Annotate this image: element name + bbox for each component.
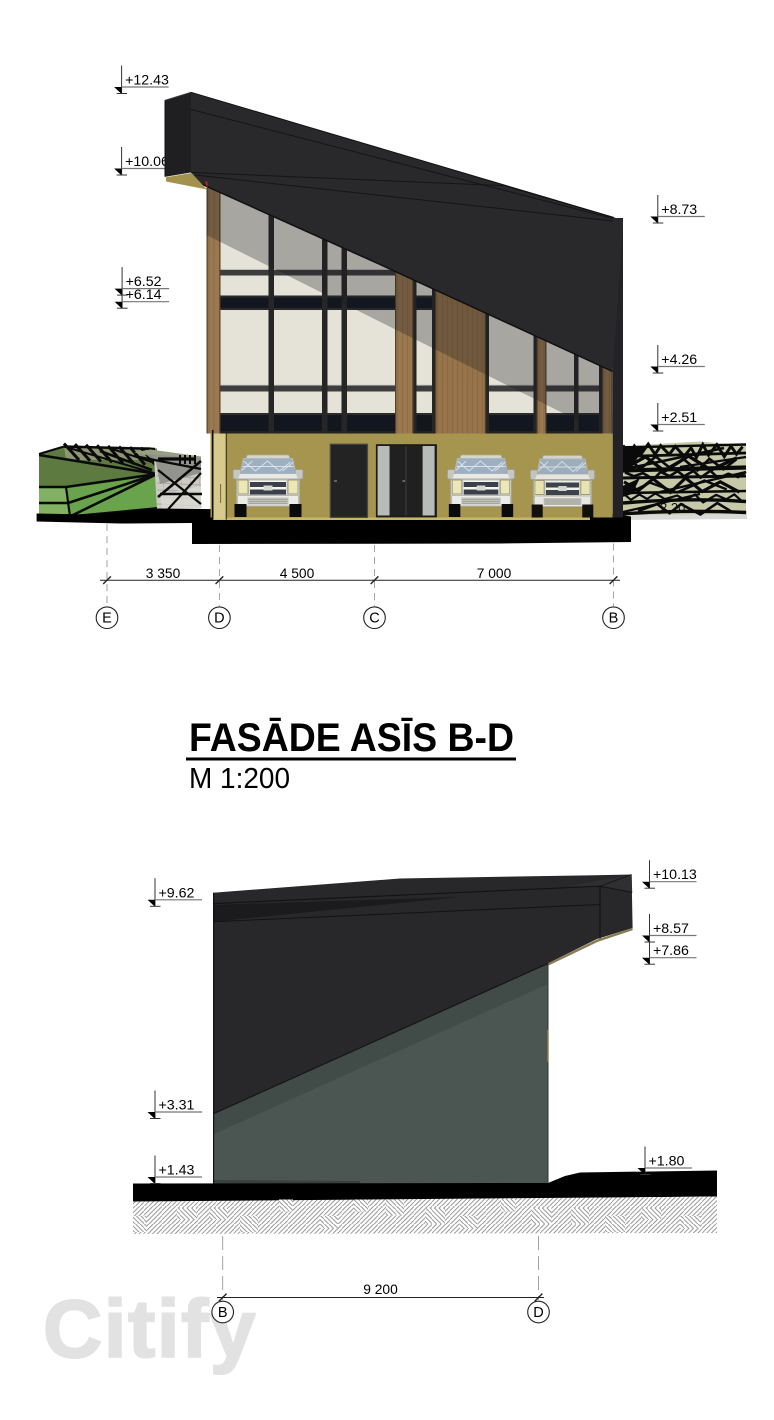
svg-text:+10.13: +10.13: [653, 867, 697, 883]
svg-text:E: E: [102, 611, 112, 627]
svg-text:+2.51: +2.51: [661, 410, 697, 426]
svg-text:C: C: [369, 611, 379, 627]
svg-text:+8.57: +8.57: [653, 921, 689, 937]
svg-text:M 1:200: M 1:200: [189, 763, 290, 795]
svg-text:+8.73: +8.73: [661, 202, 697, 218]
svg-text:7 000: 7 000: [477, 566, 512, 581]
svg-text:9 200: 9 200: [363, 1282, 398, 1297]
svg-text:B: B: [218, 1305, 228, 1321]
svg-text:+7.86: +7.86: [653, 943, 689, 959]
svg-text:D: D: [533, 1305, 543, 1321]
svg-text:B: B: [609, 611, 619, 627]
svg-text:4 500: 4 500: [280, 566, 315, 581]
svg-text:+1.43: +1.43: [159, 1163, 195, 1179]
svg-text:+9.62: +9.62: [159, 885, 195, 901]
svg-text:3 350: 3 350: [146, 566, 181, 581]
svg-text:+6.14: +6.14: [126, 287, 162, 303]
svg-text:+1.80: +1.80: [649, 1154, 685, 1170]
svg-text:+12.43: +12.43: [125, 73, 169, 89]
svg-text:+10.06: +10.06: [125, 154, 169, 170]
svg-text:D: D: [214, 611, 224, 627]
svg-text:+3.31: +3.31: [159, 1098, 195, 1114]
svg-text:FASĀDE ASĪS B-D: FASĀDE ASĪS B-D: [189, 716, 514, 760]
svg-text:+4.26: +4.26: [661, 352, 697, 368]
